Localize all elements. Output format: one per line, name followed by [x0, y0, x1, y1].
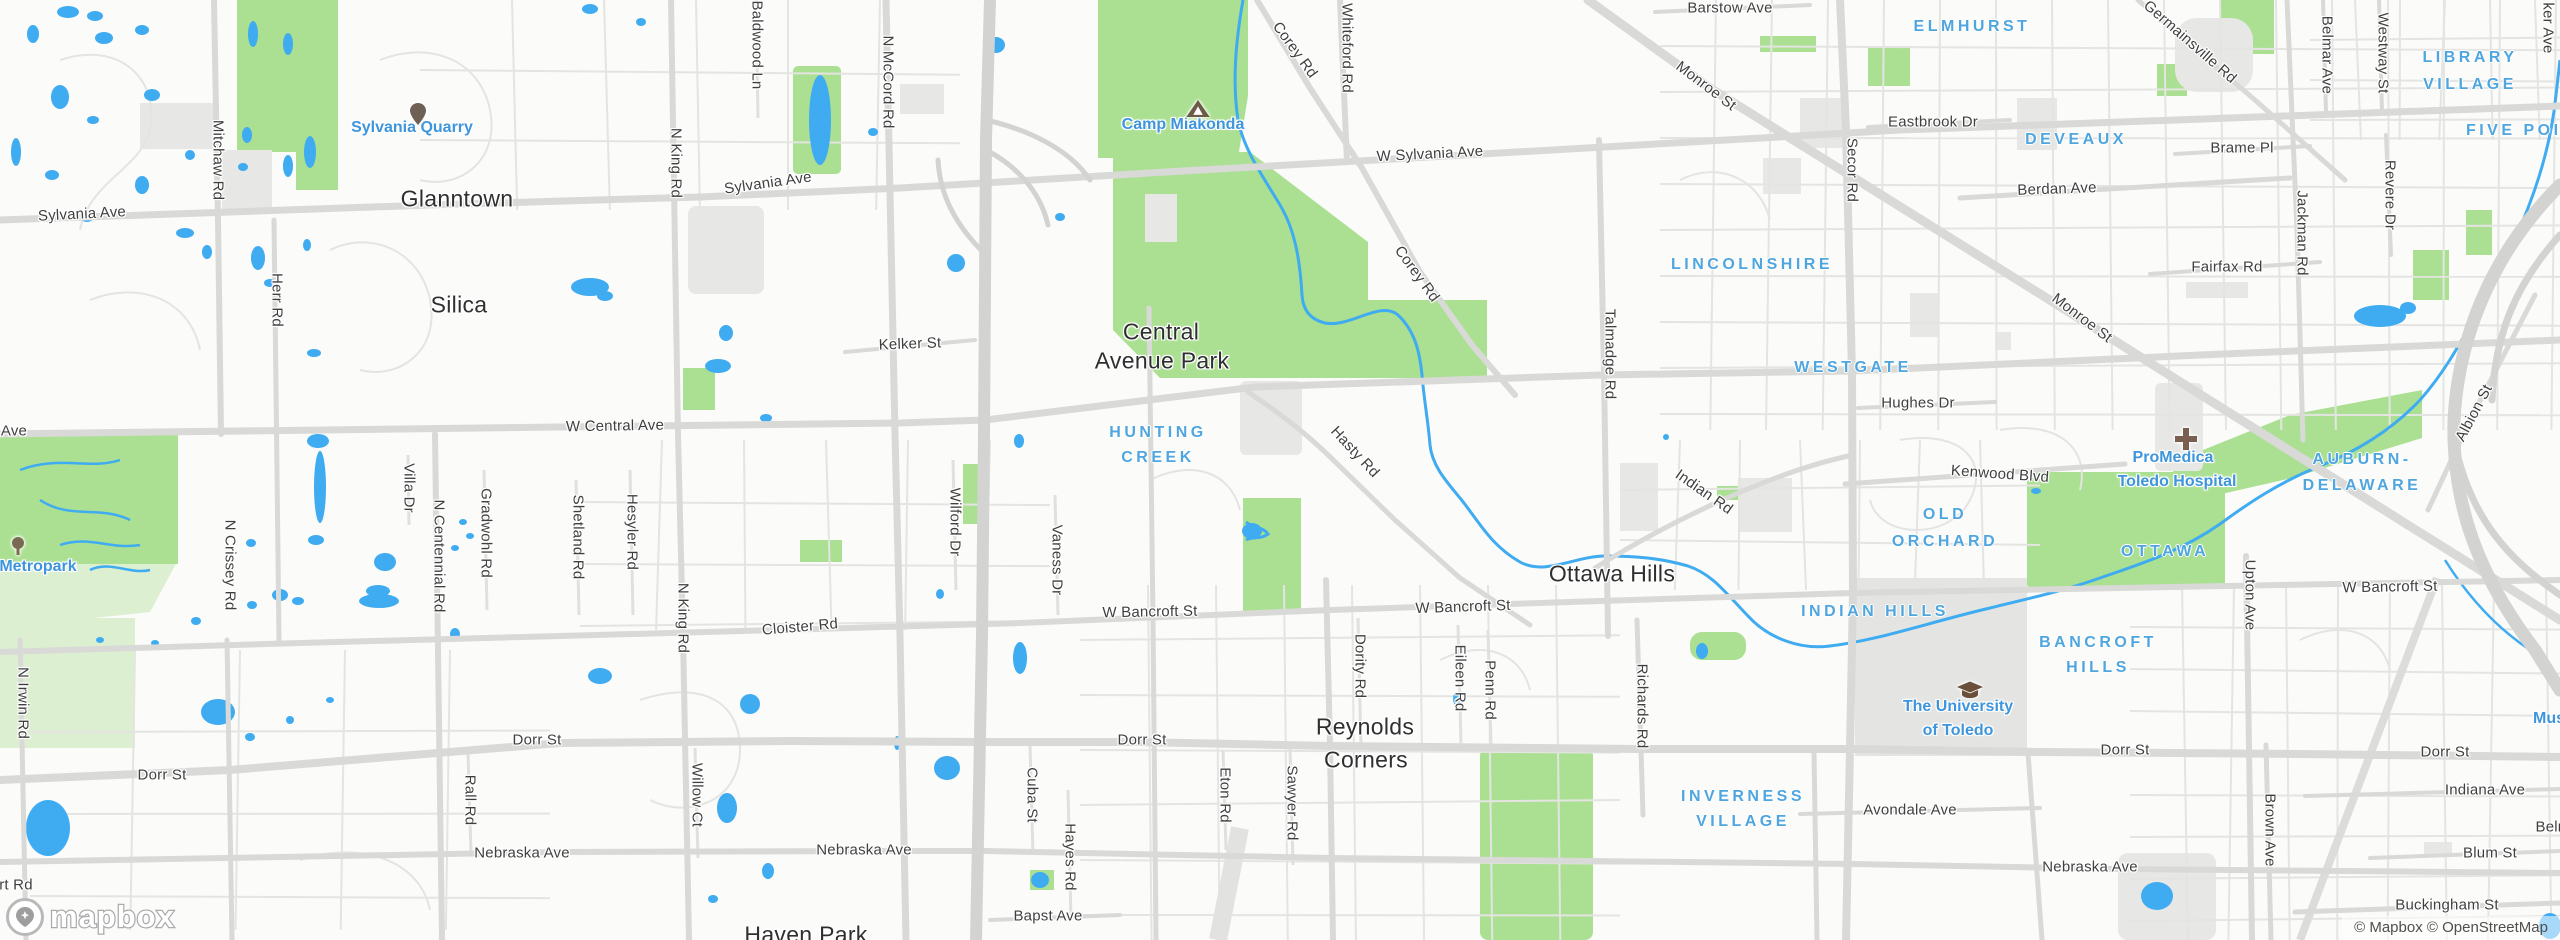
- map-label-westgate: WESTGATE: [1794, 359, 1911, 377]
- map-label-delaware: DELAWARE: [2303, 477, 2422, 495]
- map-label-camp-miakonda: Camp Miakonda: [1122, 116, 1245, 134]
- map-label-baldwood-ln: Baldwood Ln: [749, 1, 766, 90]
- map-label-of-toledo: of Toledo: [1923, 722, 1994, 740]
- map-label-dorr-st: Dorr St: [513, 732, 562, 749]
- map-label-creek: CREEK: [1121, 449, 1195, 467]
- map-label-eton-rd: Eton Rd: [1217, 767, 1234, 823]
- map-label-n-crissey-rd: N Crissey Rd: [222, 520, 239, 611]
- map-label-gradwohl-rd: Gradwohl Rd: [478, 488, 495, 578]
- map-label-avondale-ave: Avondale Ave: [1863, 802, 1957, 819]
- map-label-w-central-ave: W Central Ave: [566, 417, 664, 436]
- map-label-nebraska-ave: Nebraska Ave: [816, 842, 912, 859]
- map-label-buckingham-st: Buckingham St: [2395, 897, 2498, 914]
- map-label-bapst-ave: Bapst Ave: [1013, 908, 1082, 925]
- map-label-penn-rd: Penn Rd: [1482, 660, 1499, 720]
- map-canvas[interactable]: Sylvania AveMitchaw RdHerr RdGlanntownSi…: [0, 0, 2560, 940]
- map-label-five-points: FIVE POINTS: [2466, 122, 2560, 140]
- map-label-herr-rd: Herr Rd: [269, 273, 286, 327]
- map-label-secor-rd: Secor Rd: [1844, 138, 1861, 202]
- map-label-cloister-rd: Cloister Rd: [761, 615, 839, 639]
- map-label-n-king-rd: N King Rd: [668, 128, 685, 198]
- map-label-n-mccord-rd: N McCord Rd: [880, 35, 897, 128]
- map-label-nebraska-ave: Nebraska Ave: [474, 845, 570, 862]
- map-label-brame-pl: Brame Pl: [2210, 140, 2273, 157]
- map-label-vaness-dr: Vaness Dr: [1049, 525, 1066, 596]
- map-label-lincolnshire: LINCOLNSHIRE: [1671, 256, 1833, 274]
- map-label-talmadge-rd: Talmadge Rd: [1602, 309, 1619, 400]
- map-label-indian-hills: INDIAN HILLS: [1801, 603, 1949, 621]
- map-label-belm: Belm: [2536, 819, 2560, 836]
- map-label-shetland-rd: Shetland Rd: [570, 495, 587, 580]
- map-label-promedica: ProMedica: [2133, 449, 2214, 467]
- map-label-ottawa-hills: Ottawa Hills: [1549, 561, 1675, 588]
- map-label-belmar-ave: Belmar Ave: [2319, 16, 2336, 94]
- map-attribution[interactable]: © Mapbox © OpenStreetMap: [2342, 916, 2560, 940]
- map-label-jackman-rd: Jackman Rd: [2294, 190, 2311, 275]
- map-label-dorr-st: Dorr St: [2101, 742, 2150, 759]
- map-label-library: LIBRARY: [2422, 49, 2517, 67]
- map-label-dority-rd: Dority Rd: [1352, 634, 1369, 698]
- map-label-whiteford-rd: Whiteford Rd: [1339, 3, 1356, 93]
- map-label-dorr-st: Dorr St: [2421, 744, 2470, 761]
- map-label-berdan-ave: Berdan Ave: [2017, 179, 2097, 199]
- map-label-monroe-st: Monroe St: [1673, 58, 1740, 114]
- map-label-westway-st: Westway St: [2375, 13, 2392, 94]
- map-label-orchard: ORCHARD: [1892, 533, 1998, 551]
- map-label-hayes-rd: Hayes Rd: [1062, 823, 1079, 890]
- map-label-hunting: HUNTING: [1109, 424, 1206, 442]
- map-label-kelker-st: Kelker St: [878, 334, 941, 353]
- mapbox-logo[interactable]: mapbox: [6, 898, 175, 936]
- map-label-elmhurst: ELMHURST: [1914, 18, 2031, 36]
- map-label-hesyler-rd: Hesyler Rd: [624, 494, 641, 570]
- map-label-central: Central: [1123, 319, 1199, 346]
- map-label-cuba-st: Cuba St: [1024, 767, 1041, 823]
- map-label-indian-rd: Indian Rd: [1672, 466, 1736, 518]
- map-label-richards-rd: Richards Rd: [1634, 664, 1651, 749]
- map-label-eileen-rd: Eileen Rd: [1452, 645, 1469, 712]
- map-label-w-sylvania-ave: W Sylvania Ave: [1376, 143, 1483, 166]
- map-label-eastbrook-dr: Eastbrook Dr: [1888, 114, 1978, 131]
- map-label-kenwood-blvd: Kenwood Blvd: [1950, 462, 2049, 486]
- map-label-upton-ave: Upton Ave: [2242, 560, 2259, 631]
- map-label-inverness: INVERNESS: [1681, 788, 1805, 806]
- map-label-mus: Mus: [2533, 710, 2560, 728]
- map-label-hughes-dr: Hughes Dr: [1881, 395, 1955, 412]
- map-label-willow-ct: Willow Ct: [689, 763, 706, 827]
- map-label-the-university: The University: [1903, 698, 2013, 716]
- map-label-germainsville-rd: Germainsville Rd: [2140, 0, 2240, 87]
- map-label-hasty-rd: Hasty Rd: [1327, 423, 1383, 481]
- map-label-sylvania-ave: Sylvania Ave: [723, 168, 813, 197]
- map-label-ave: Ave: [1, 423, 27, 440]
- map-label-wilford-dr: Wilford Dr: [947, 488, 964, 557]
- map-label-fairfax-rd: Fairfax Rd: [2191, 259, 2262, 276]
- map-label-ottawa: OTTAWA: [2121, 543, 2209, 561]
- map-label-monroe-st: Monroe St: [2049, 290, 2116, 346]
- map-labels-layer: Sylvania AveMitchaw RdHerr RdGlanntownSi…: [0, 0, 2560, 940]
- mapbox-logo-icon: [6, 898, 44, 936]
- map-label-village: VILLAGE: [1696, 813, 1790, 831]
- map-label-w-bancroft-st: W Bancroft St: [1102, 603, 1197, 622]
- map-label-villa-dr: Villa Dr: [401, 463, 418, 513]
- map-label-n-irwin-rd: N Irwin Rd: [15, 667, 32, 739]
- map-label-corey-rd: Corey Rd: [1269, 19, 1321, 82]
- map-label-ker-ave: ker Ave: [2540, 2, 2557, 53]
- map-label-n-centennial-rd: N Centennial Rd: [431, 499, 448, 612]
- map-label-auburn-: AUBURN-: [2312, 451, 2411, 469]
- map-label-metropark: Metropark: [0, 558, 77, 576]
- map-label-n-king-rd: N King Rd: [675, 583, 692, 653]
- map-label-barstow-ave: Barstow Ave: [1687, 0, 1772, 17]
- map-label-nebraska-ave: Nebraska Ave: [2042, 859, 2138, 876]
- map-label-hills: HILLS: [2066, 659, 2130, 677]
- map-label-sylvania-ave: Sylvania Ave: [38, 203, 127, 225]
- map-label-rall-rd: Rall Rd: [462, 775, 479, 826]
- map-label-blum-st: Blum St: [2463, 845, 2517, 862]
- map-label-dorr-st: Dorr St: [1118, 732, 1167, 749]
- map-label-glanntown: Glanntown: [401, 186, 514, 213]
- mapbox-wordmark: mapbox: [50, 899, 175, 935]
- map-label-indiana-ave: Indiana Ave: [2445, 782, 2525, 799]
- map-label-dorr-st: Dorr St: [138, 767, 187, 784]
- map-label-haven-park: Haven Park: [744, 922, 867, 940]
- map-label-village: VILLAGE: [2423, 76, 2517, 94]
- map-label-old: OLD: [1923, 506, 1967, 524]
- map-label-corey-rd: Corey Rd: [1391, 243, 1443, 306]
- map-label-sawyer-rd: Sawyer Rd: [1284, 765, 1301, 840]
- map-label-revere-dr: Revere Dr: [2382, 160, 2399, 230]
- map-label-deveaux: DEVEAUX: [2025, 131, 2127, 149]
- map-label-w-bancroft-st: W Bancroft St: [1415, 597, 1511, 617]
- map-label-rt-rd: rt Rd: [0, 877, 33, 894]
- map-label-brown-ave: Brown Ave: [2262, 793, 2279, 866]
- map-label-reynolds: Reynolds: [1316, 714, 1414, 741]
- map-label-silica: Silica: [431, 292, 488, 319]
- map-label-avenue-park: Avenue Park: [1095, 348, 1230, 375]
- map-label-w-bancroft-st: W Bancroft St: [2342, 578, 2437, 597]
- map-label-toledo-hospital: Toledo Hospital: [2118, 473, 2237, 491]
- map-label-bancroft: BANCROFT: [2039, 634, 2157, 652]
- map-label-mitchaw-rd: Mitchaw Rd: [210, 120, 227, 200]
- map-label-corners: Corners: [1324, 747, 1408, 774]
- map-label-albion-st: Albion St: [2452, 382, 2496, 445]
